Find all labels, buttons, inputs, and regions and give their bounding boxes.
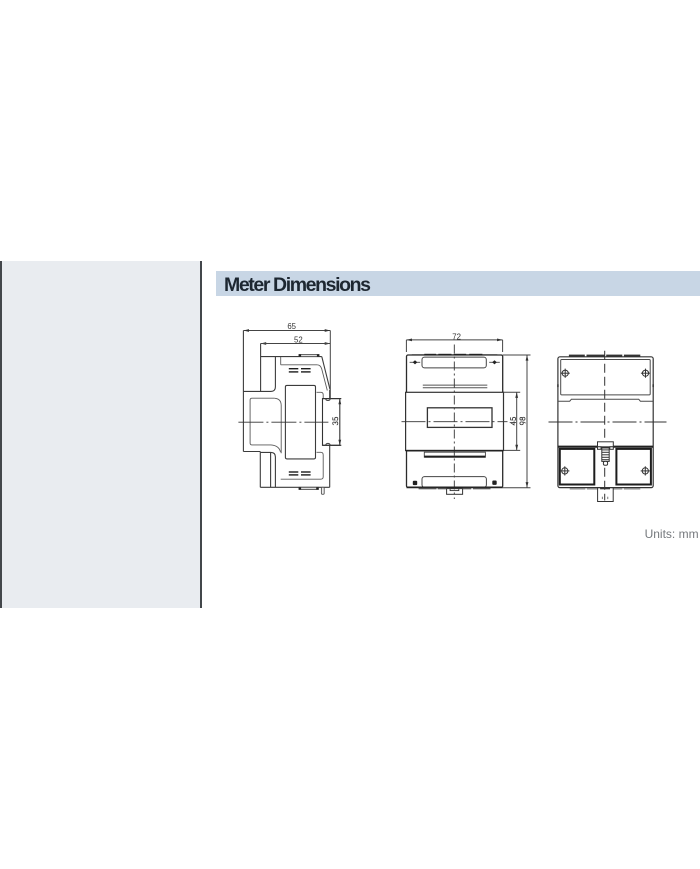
svg-text:72: 72 — [452, 332, 461, 341]
svg-text:65: 65 — [287, 322, 296, 331]
svg-text:52: 52 — [294, 335, 303, 344]
